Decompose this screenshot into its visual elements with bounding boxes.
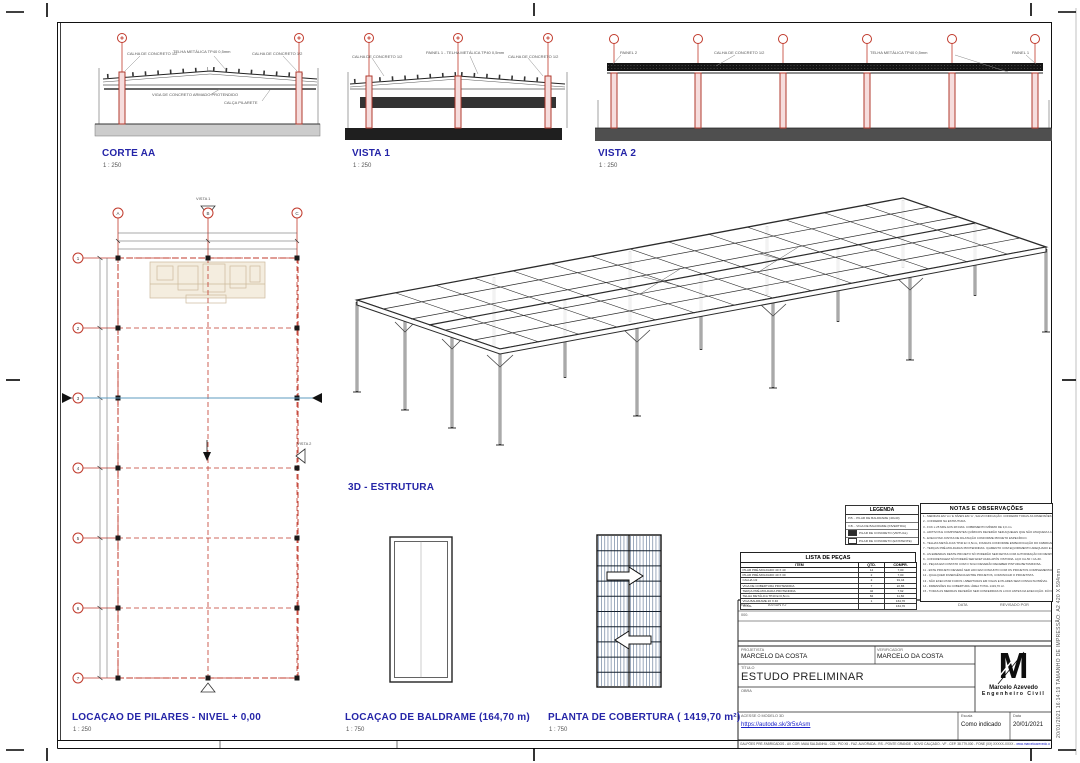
- lista-cell: TOTAL: [741, 604, 859, 609]
- titulo-label: TÍTULO: [741, 666, 755, 670]
- data-col-label: DATA: [958, 603, 968, 607]
- data-value: 20/01/2021: [1013, 722, 1043, 728]
- address-strip: GALPÕES PRÉ-FABRICADOS - AV. COR. MAIA S…: [740, 742, 1050, 746]
- verificador-value: MARCELO DA COSTA: [877, 653, 943, 660]
- legenda-row: PILAR DE CONCRETO (EXISTENTE): [846, 538, 918, 545]
- logo-role: Engenheiro Civil: [976, 691, 1051, 697]
- annotation-calha-v1-right: CALHA DE CONCRETO 1/2: [508, 54, 558, 59]
- vista-2-drawing: [595, 35, 1052, 142]
- pilares-scale: 1 : 250: [73, 727, 91, 733]
- legenda-swatch-dark: [848, 530, 857, 536]
- lista-cell: 164,70: [885, 604, 917, 609]
- locacao-pilares-drawing: A B C 1 2 3 4 5 6 7: [62, 206, 322, 692]
- svg-text:B: B: [206, 211, 209, 216]
- legenda-row-text: V.B. - VIGA DE BALDRAME (INVERTIDA): [848, 524, 906, 528]
- pilares-title: LOCAÇAO DE PILARES - NIVEL + 0,00: [72, 712, 261, 723]
- legenda-title: LEGENDA: [846, 506, 918, 515]
- legenda-box: LEGENDA P.B. - PILAR DE BALDRAME (40x40)…: [845, 505, 919, 545]
- notas-box: NOTAS E OBSERVAÇÕES 1 - MEDIDAS EM 'cm' …: [920, 503, 1053, 602]
- plan-vista1-marker-label: VISTA 1: [196, 196, 210, 201]
- annotation-calha-v1-left: CALHA DE CONCRETO 1/2: [352, 54, 402, 59]
- annotation-telha: TELHA METÁLICA TP40 0,5mm: [173, 49, 231, 54]
- corte-aa-scale: 1 : 250: [103, 163, 121, 169]
- legenda-row-text: PILAR DE CONCRETO (VIRTUAL): [859, 531, 908, 535]
- estrutura-3d-title: 3D - ESTRUTURA: [348, 482, 434, 493]
- lista-title: LISTA DE PEÇAS: [740, 552, 916, 562]
- annotation-calha-left: CALHA DE CONCRETO 1/2: [127, 51, 177, 56]
- baldrame-title: LOCAÇAO DE BALDRAME (164,70 m): [345, 712, 530, 723]
- rev-number: 000.: [741, 613, 748, 617]
- annotation-painel-2: PAINEL 2: [620, 50, 637, 55]
- logo-pencil-icon: [990, 649, 1038, 685]
- nota-line: 7 - TERÇAS PRÉ-MOLDADAS PROTENDIDAS. IÇA…: [921, 546, 1052, 551]
- assunto-label: ASSUNTO: [768, 603, 786, 607]
- sheet-geometry: A B C 1 2 3 4 5 6 7: [0, 0, 1080, 763]
- annotation-calha-right: CALHA DE CONCRETO 1/2: [252, 51, 302, 56]
- annotation-painel-telha: PAINEL 1 - TELHA METÁLICA TP40 0,5mm: [426, 50, 504, 55]
- legenda-row: P.B. - PILAR DE BALDRAME (40x40): [846, 515, 918, 523]
- table-row: TOTAL164,70: [741, 604, 917, 609]
- vista-2-scale: 1 : 250: [599, 163, 617, 169]
- projetista-label: PROJETISTA: [741, 648, 764, 652]
- annotation-telha-v2: TELHA METÁLICA TP40 0,5mm: [870, 50, 928, 55]
- locacao-baldrame-drawing: [390, 537, 452, 682]
- revisado-label: REVISADO POR: [1000, 603, 1029, 607]
- annotation-calha-v2: CALHA DE CONCRETO 1/2: [714, 50, 764, 55]
- nota-line: 12 - QUALQUER DIVERGÊNCIA ENTRE PROJETOS…: [921, 573, 1052, 578]
- data-label: Data: [1013, 714, 1021, 718]
- rev-label: REV.: [741, 603, 750, 607]
- company-logo: M Marcelo Azevedo Engenheiro Civil: [976, 647, 1051, 711]
- nota-line: 10 - PEÇAS EM CONTATO COM O SOLO DEVERÃO…: [921, 562, 1052, 567]
- vista-2-title: VISTA 2: [598, 148, 636, 159]
- notas-body: 1 - MEDIDAS EM 'cm' E NÍVEIS EM 'm', SAL…: [921, 514, 1052, 595]
- legenda-row: PILAR DE CONCRETO (VIRTUAL): [846, 530, 918, 538]
- nota-line: 15 - TODAS AS MEDIDAS DEVERÃO SER CONFER…: [921, 589, 1052, 594]
- annotation-calca-pilarete: CALÇA PILARETE: [224, 100, 258, 105]
- legenda-row-text: PILAR DE CONCRETO (EXISTENTE): [859, 539, 912, 543]
- cobertura-scale: 1 : 750: [549, 727, 567, 733]
- annotation-painel-1: PAINEL 1: [1012, 50, 1029, 55]
- link-label: ACESSE O MODELO 3D: [741, 714, 784, 718]
- projetista-value: MARCELO DA COSTA: [741, 653, 807, 660]
- legenda-row: V.B. - VIGA DE BALDRAME (INVERTIDA): [846, 523, 918, 531]
- annotation-viga: VIGA DE CONCRETO ARMADO PROTENDIDO: [152, 92, 238, 97]
- planta-cobertura-drawing: [597, 535, 661, 687]
- corte-aa-title: CORTE AA: [102, 148, 155, 159]
- bottom-marker-arrow: [201, 683, 215, 692]
- legenda-row-text: P.B. - PILAR DE BALDRAME (40x40): [848, 516, 900, 520]
- notas-title: NOTAS E OBSERVAÇÕES: [921, 504, 1052, 514]
- slope-arrow-right: [607, 567, 643, 585]
- cobertura-title: PLANTA DE COBERTURA ( 1419,70 m²): [548, 712, 740, 723]
- nota-line: 4 - ADITIVOS E COMPONENTES QUÍMICOS DEVE…: [921, 530, 1052, 535]
- sheet-title: ESTUDO PRELIMINAR: [741, 671, 864, 683]
- baldrame-scale: 1 : 750: [346, 727, 364, 733]
- plan-vista2-marker-label: VISTA 2: [297, 441, 311, 446]
- lista-cell: [859, 604, 885, 609]
- trim-marks: [6, 3, 1076, 761]
- verificador-label: VERIFICADOR: [877, 648, 903, 652]
- print-margin-note: 20/01/2021 16:14:19 TAMANHO DE IMPRESSÃO…: [1056, 18, 1062, 738]
- address-link[interactable]: www.marceloazevedo.com.br: [1016, 742, 1050, 746]
- escala-value: Como indicado: [961, 722, 1001, 728]
- lista-pecas: LISTA DE PEÇAS ITEM QTD. COMPR. PILAR PR…: [740, 552, 916, 610]
- legenda-swatch-light: [848, 538, 857, 544]
- vista-1-title: VISTA 1: [352, 148, 390, 159]
- interior-layout: [150, 262, 265, 303]
- estrutura-3d-drawing: [353, 198, 1050, 445]
- level-marker: [203, 452, 211, 461]
- lista-table: ITEM QTD. COMPR. PILAR PRÉ-MOLDADO 40 X …: [740, 562, 917, 610]
- obra-label: OBRA: [741, 689, 752, 693]
- escala-label: Escala: [961, 714, 972, 718]
- model-link[interactable]: https://autode.sk/3r5xAsm: [741, 722, 810, 728]
- vista-1-scale: 1 : 250: [353, 163, 371, 169]
- address-text: GALPÕES PRÉ-FABRICADOS - AV. COR. MAIA S…: [740, 742, 1016, 746]
- drawing-sheet: A B C 1 2 3 4 5 6 7: [0, 0, 1080, 763]
- svg-text:A: A: [116, 211, 119, 216]
